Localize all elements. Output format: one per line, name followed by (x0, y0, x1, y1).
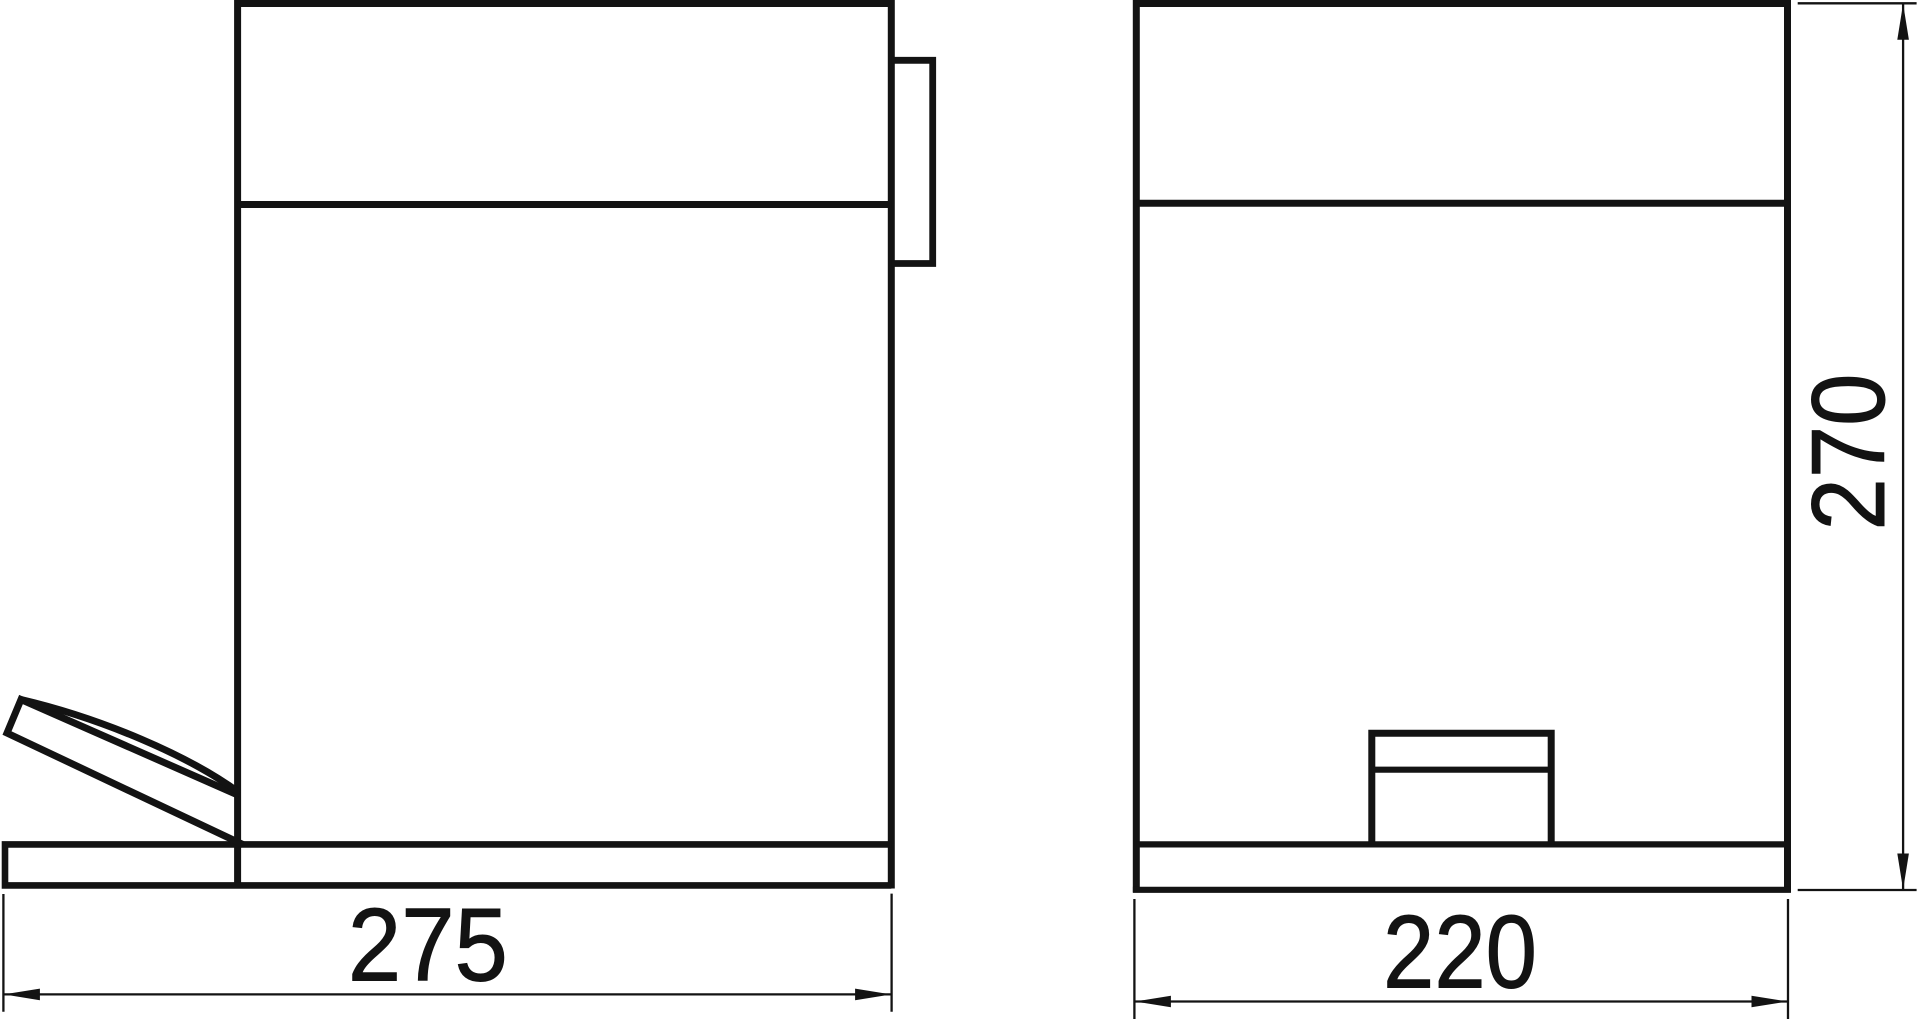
svg-text:270: 270 (1791, 374, 1907, 531)
svg-text:220: 220 (1383, 895, 1537, 1011)
svg-text:275: 275 (348, 887, 508, 1003)
